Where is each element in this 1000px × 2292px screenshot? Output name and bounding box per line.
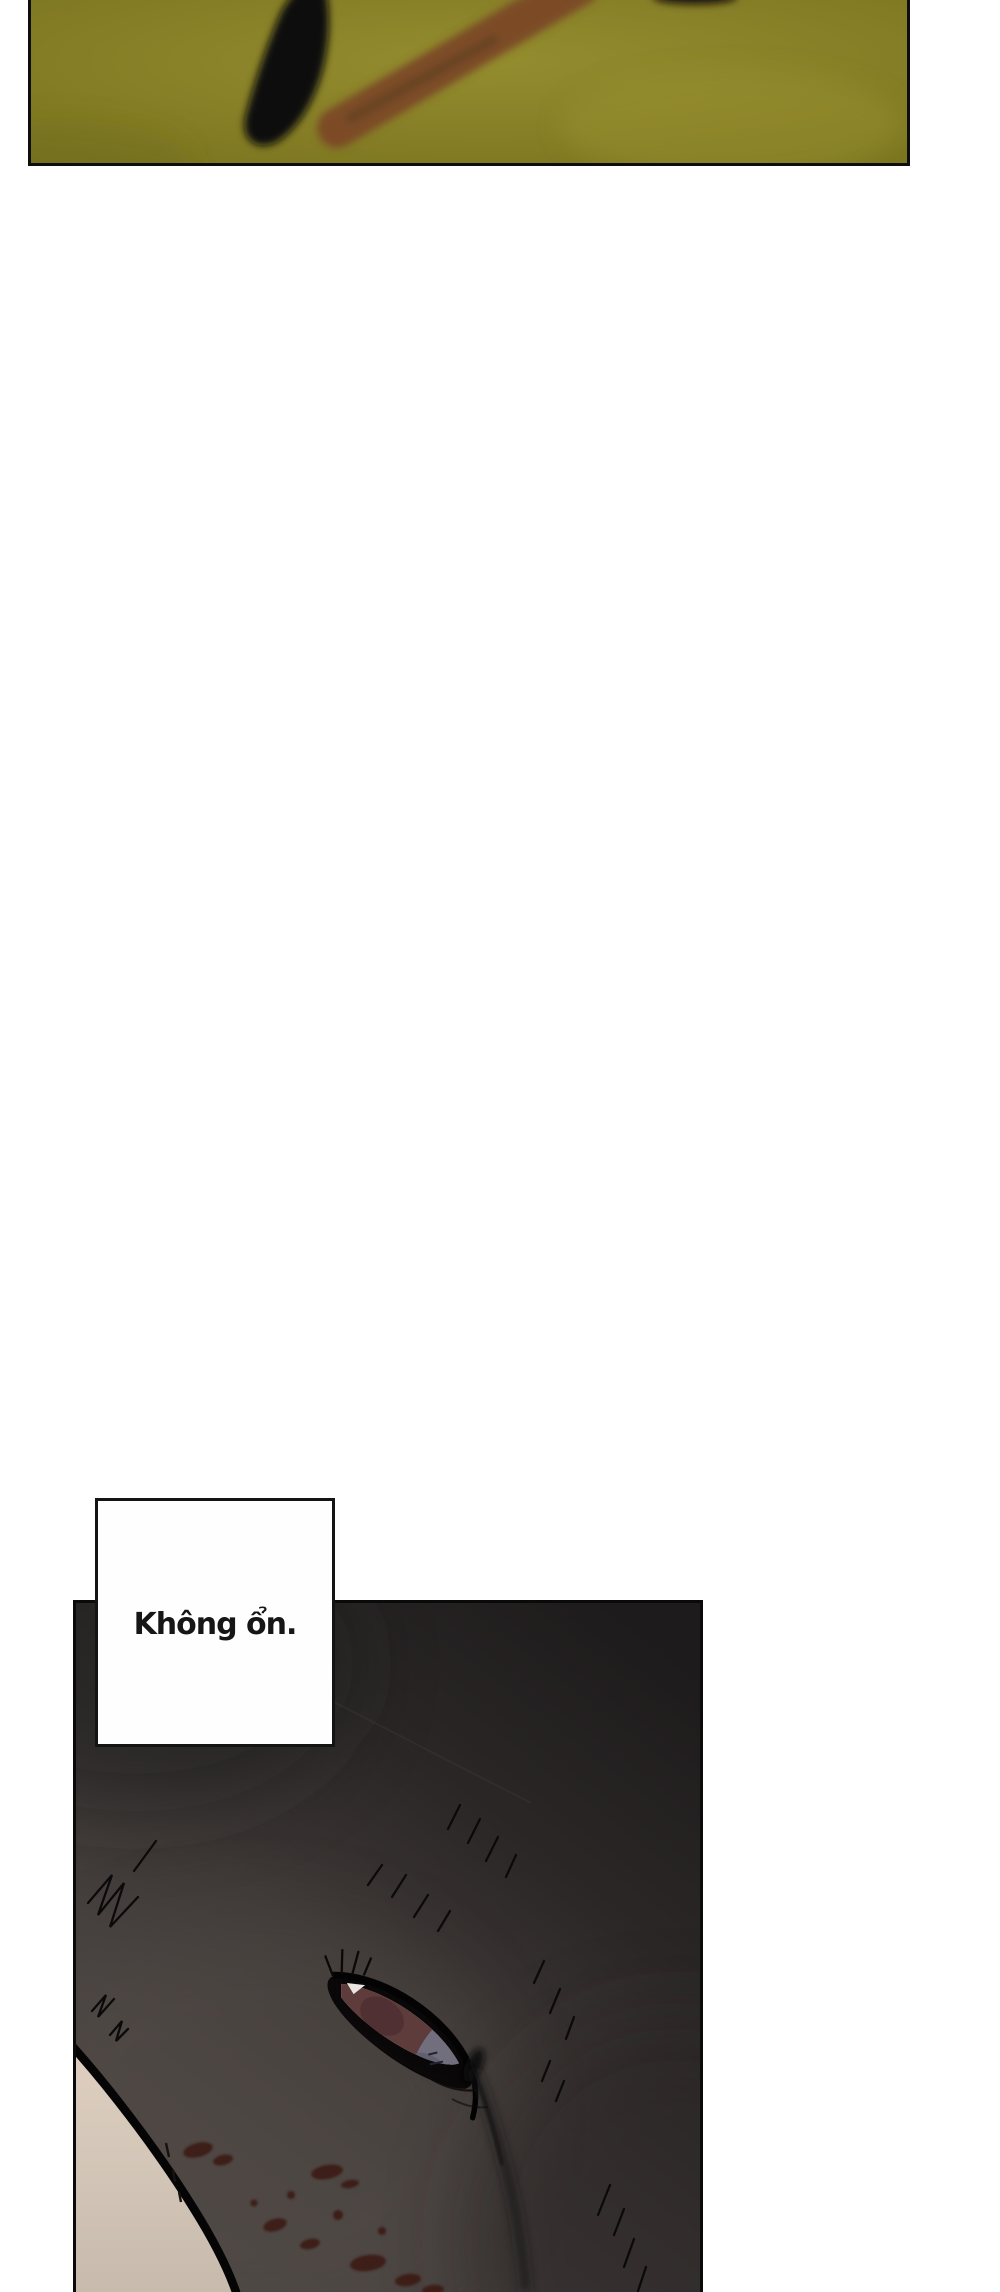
webtoon-page: Không ổn. [0,0,1000,2292]
action-panel-art [31,0,907,163]
speech-text: Không ổn. [134,1607,297,1642]
speech-box: Không ổn. [95,1498,335,1747]
action-panel [28,0,910,166]
